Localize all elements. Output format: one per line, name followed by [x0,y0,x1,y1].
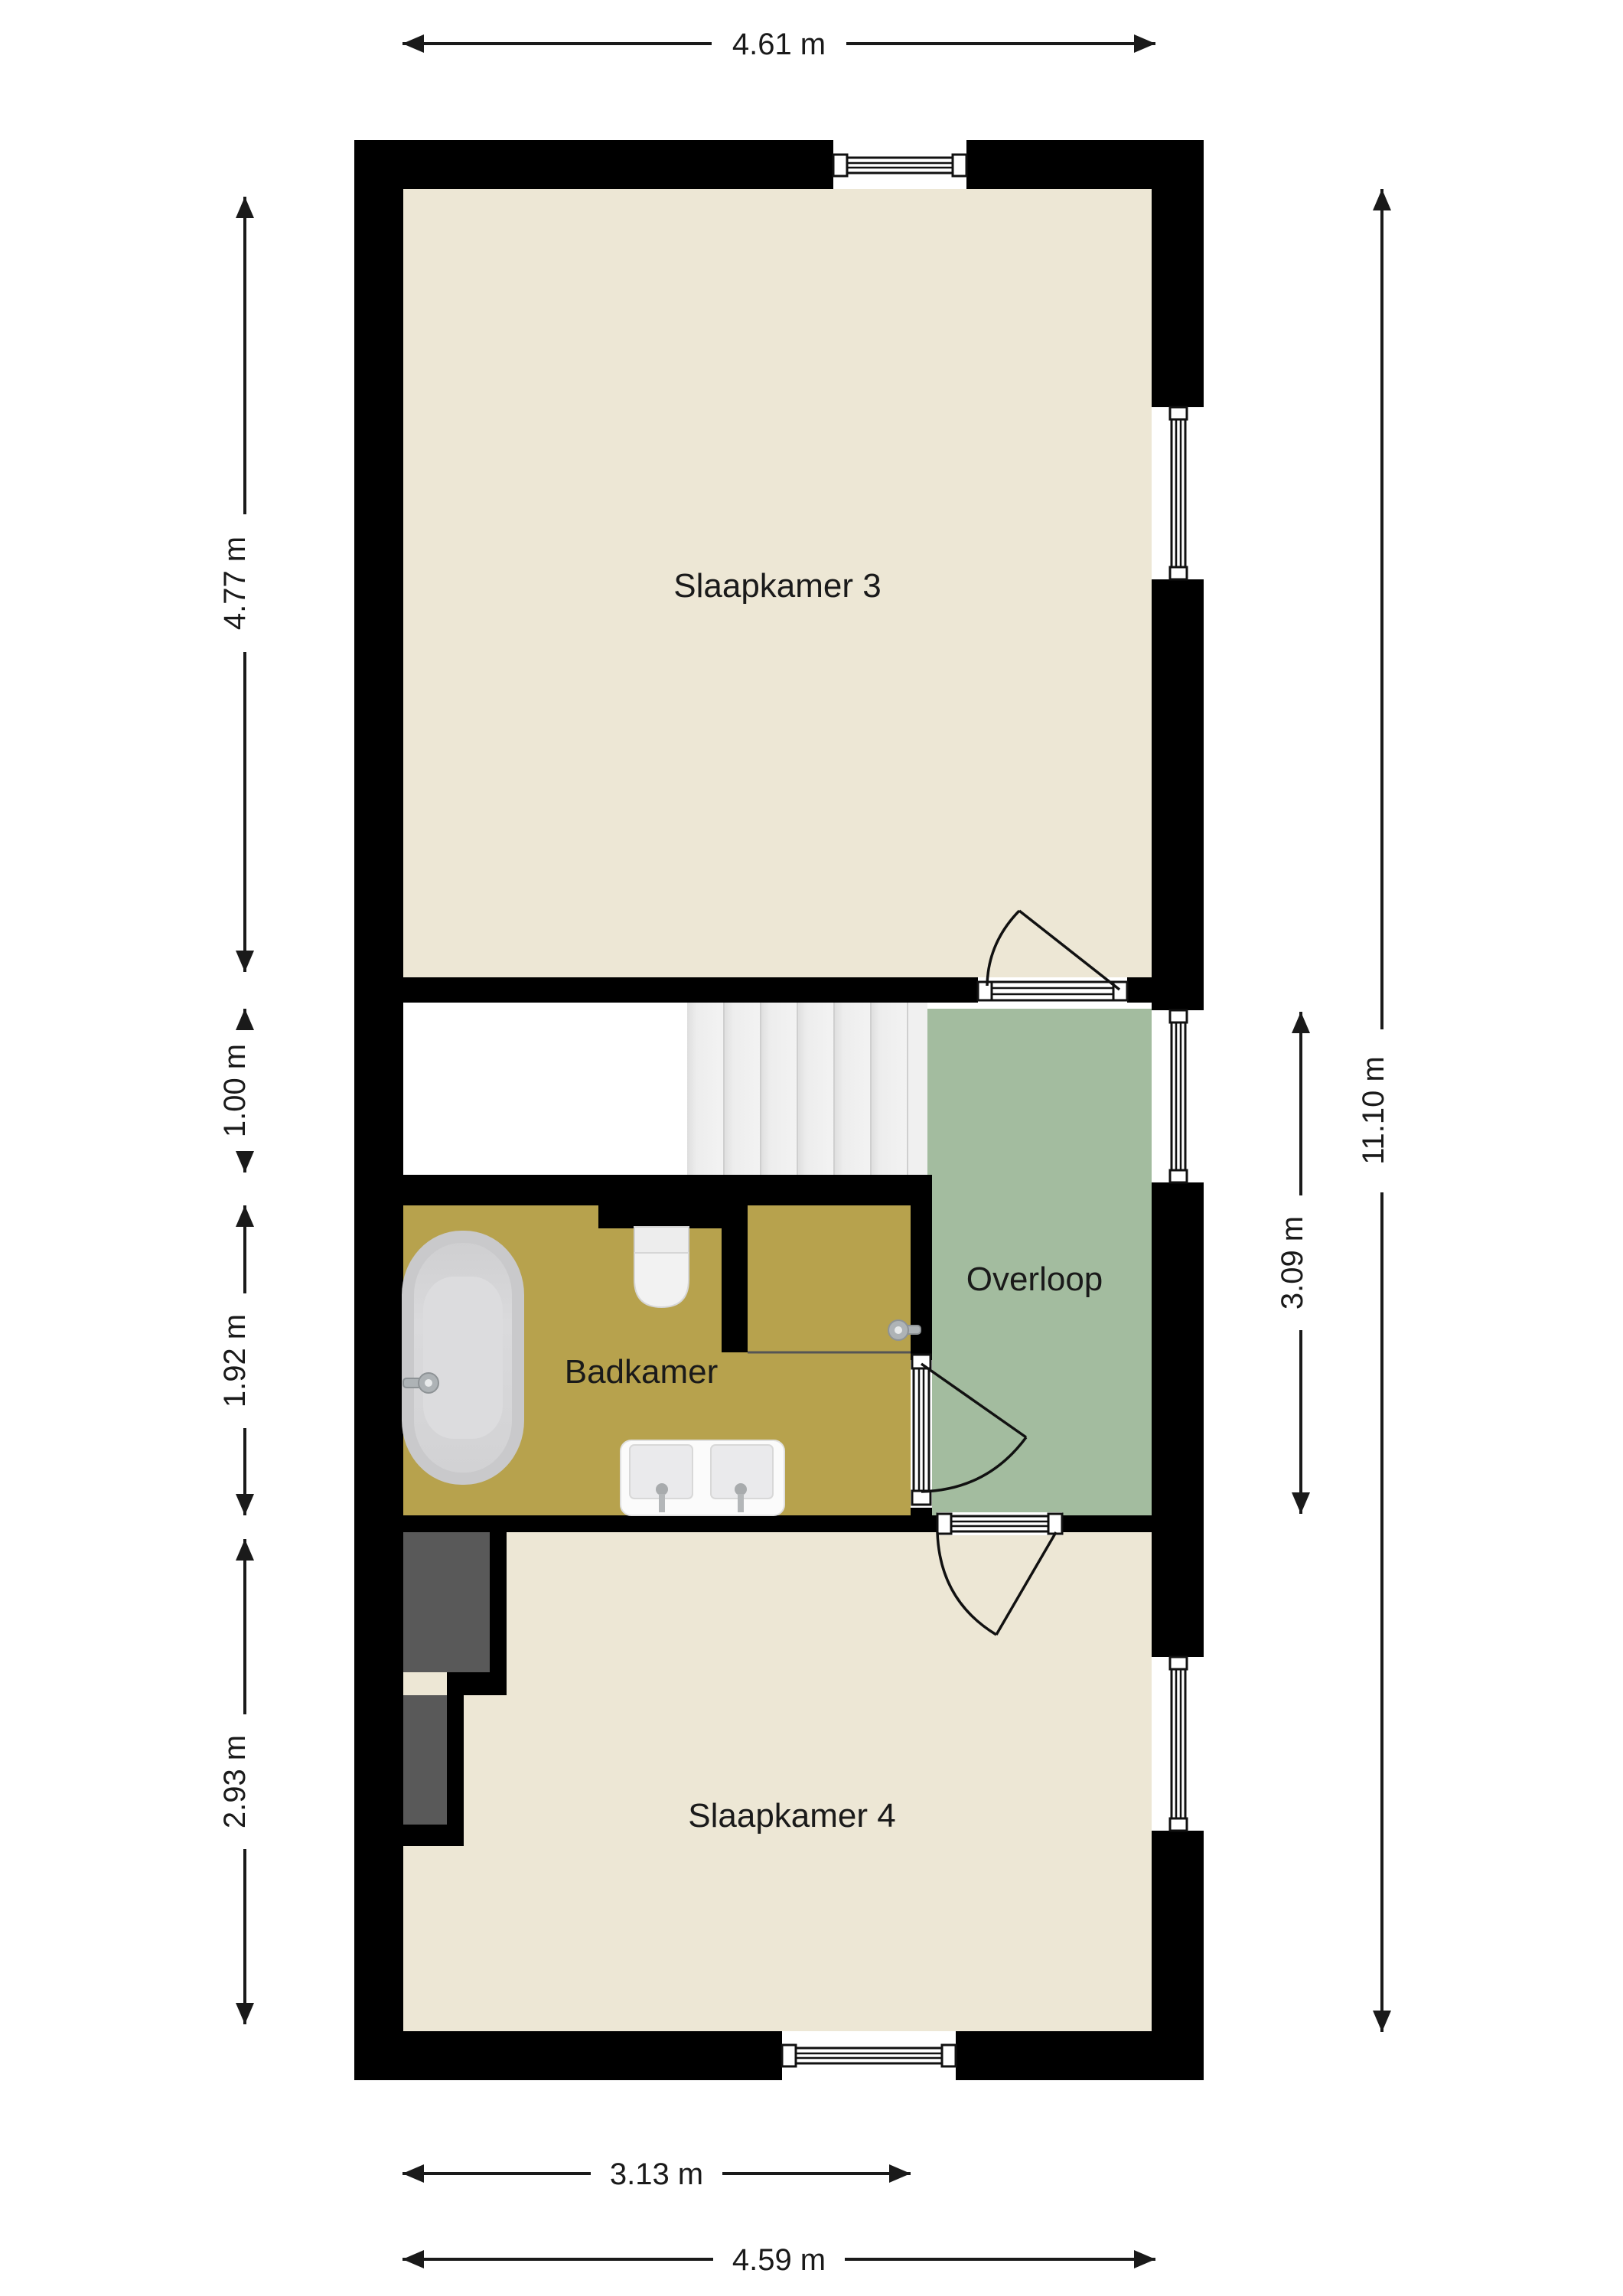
dim-label-right-total: 11.10 m [1357,1056,1390,1165]
closet-void-upper [403,1532,490,1672]
dim-label-left-stairhall: 1.00 m [218,1044,252,1137]
dim-label-left-bedroom3: 4.77 m [218,536,252,630]
dim-label-left-bathroom: 1.92 m [218,1314,252,1407]
dimension-bottom-total: 4.59 m [402,2243,1155,2277]
overloop-label: Overloop [966,1261,1103,1298]
slaapkamer4-floor [403,1532,1152,2031]
slaapkamer4-label: Slaapkamer 4 [688,1797,895,1835]
window-right-bedroom4 [1152,1657,1204,1831]
dimension-left-bedroom3: 4.77 m [218,197,254,972]
floorplan-drawing: 4.61 m 4.77 m 1.00 m 1.92 m 2.93 m 3.09 … [0,0,1623,2296]
window-right-landing [1152,1010,1204,1182]
window-top [833,140,966,189]
window-right-bedroom3 [1152,407,1204,579]
floorplan-page: 4.61 m 4.77 m 1.00 m 1.92 m 2.93 m 3.09 … [0,0,1623,2296]
wall-bedroom4-north [354,1515,1204,1532]
dim-label-top-width: 4.61 m [732,28,826,61]
dimension-right-landing: 3.09 m [1276,1012,1310,1514]
dimension-left-bedroom4: 2.93 m [218,1539,254,2024]
double-washbasin [621,1440,784,1515]
wall-top [354,140,1204,189]
dimension-left-bathroom: 1.92 m [218,1205,254,1515]
wall-left [354,140,403,2080]
stairwell-floor [403,1003,687,1175]
closet-void-lower [403,1695,447,1825]
dim-label-bottom-inner: 3.13 m [610,2157,703,2191]
dim-label-bottom-total: 4.59 m [732,2243,826,2277]
wall-toilet-nib [598,1205,722,1228]
wall-shower-partition [722,1175,748,1352]
dimension-top-width: 4.61 m [402,28,1155,61]
dimension-bottom-inner: 3.13 m [402,2157,911,2191]
staircase [687,1003,927,1175]
wall-bottom [354,2031,1204,2080]
dimension-left-stairhall: 1.00 m [218,1009,254,1172]
dimension-right-total: 11.10 m [1357,189,1391,2032]
toilet [634,1227,689,1307]
window-bottom [782,2031,956,2080]
dim-label-left-bedroom4: 2.93 m [218,1735,252,1828]
slaapkamer3-label: Slaapkamer 3 [673,567,881,605]
wall-stairs-bathroom [403,1175,911,1205]
dim-label-right-landing: 3.09 m [1276,1216,1309,1309]
bathtub [402,1231,524,1485]
badkamer-label: Badkamer [565,1353,719,1391]
